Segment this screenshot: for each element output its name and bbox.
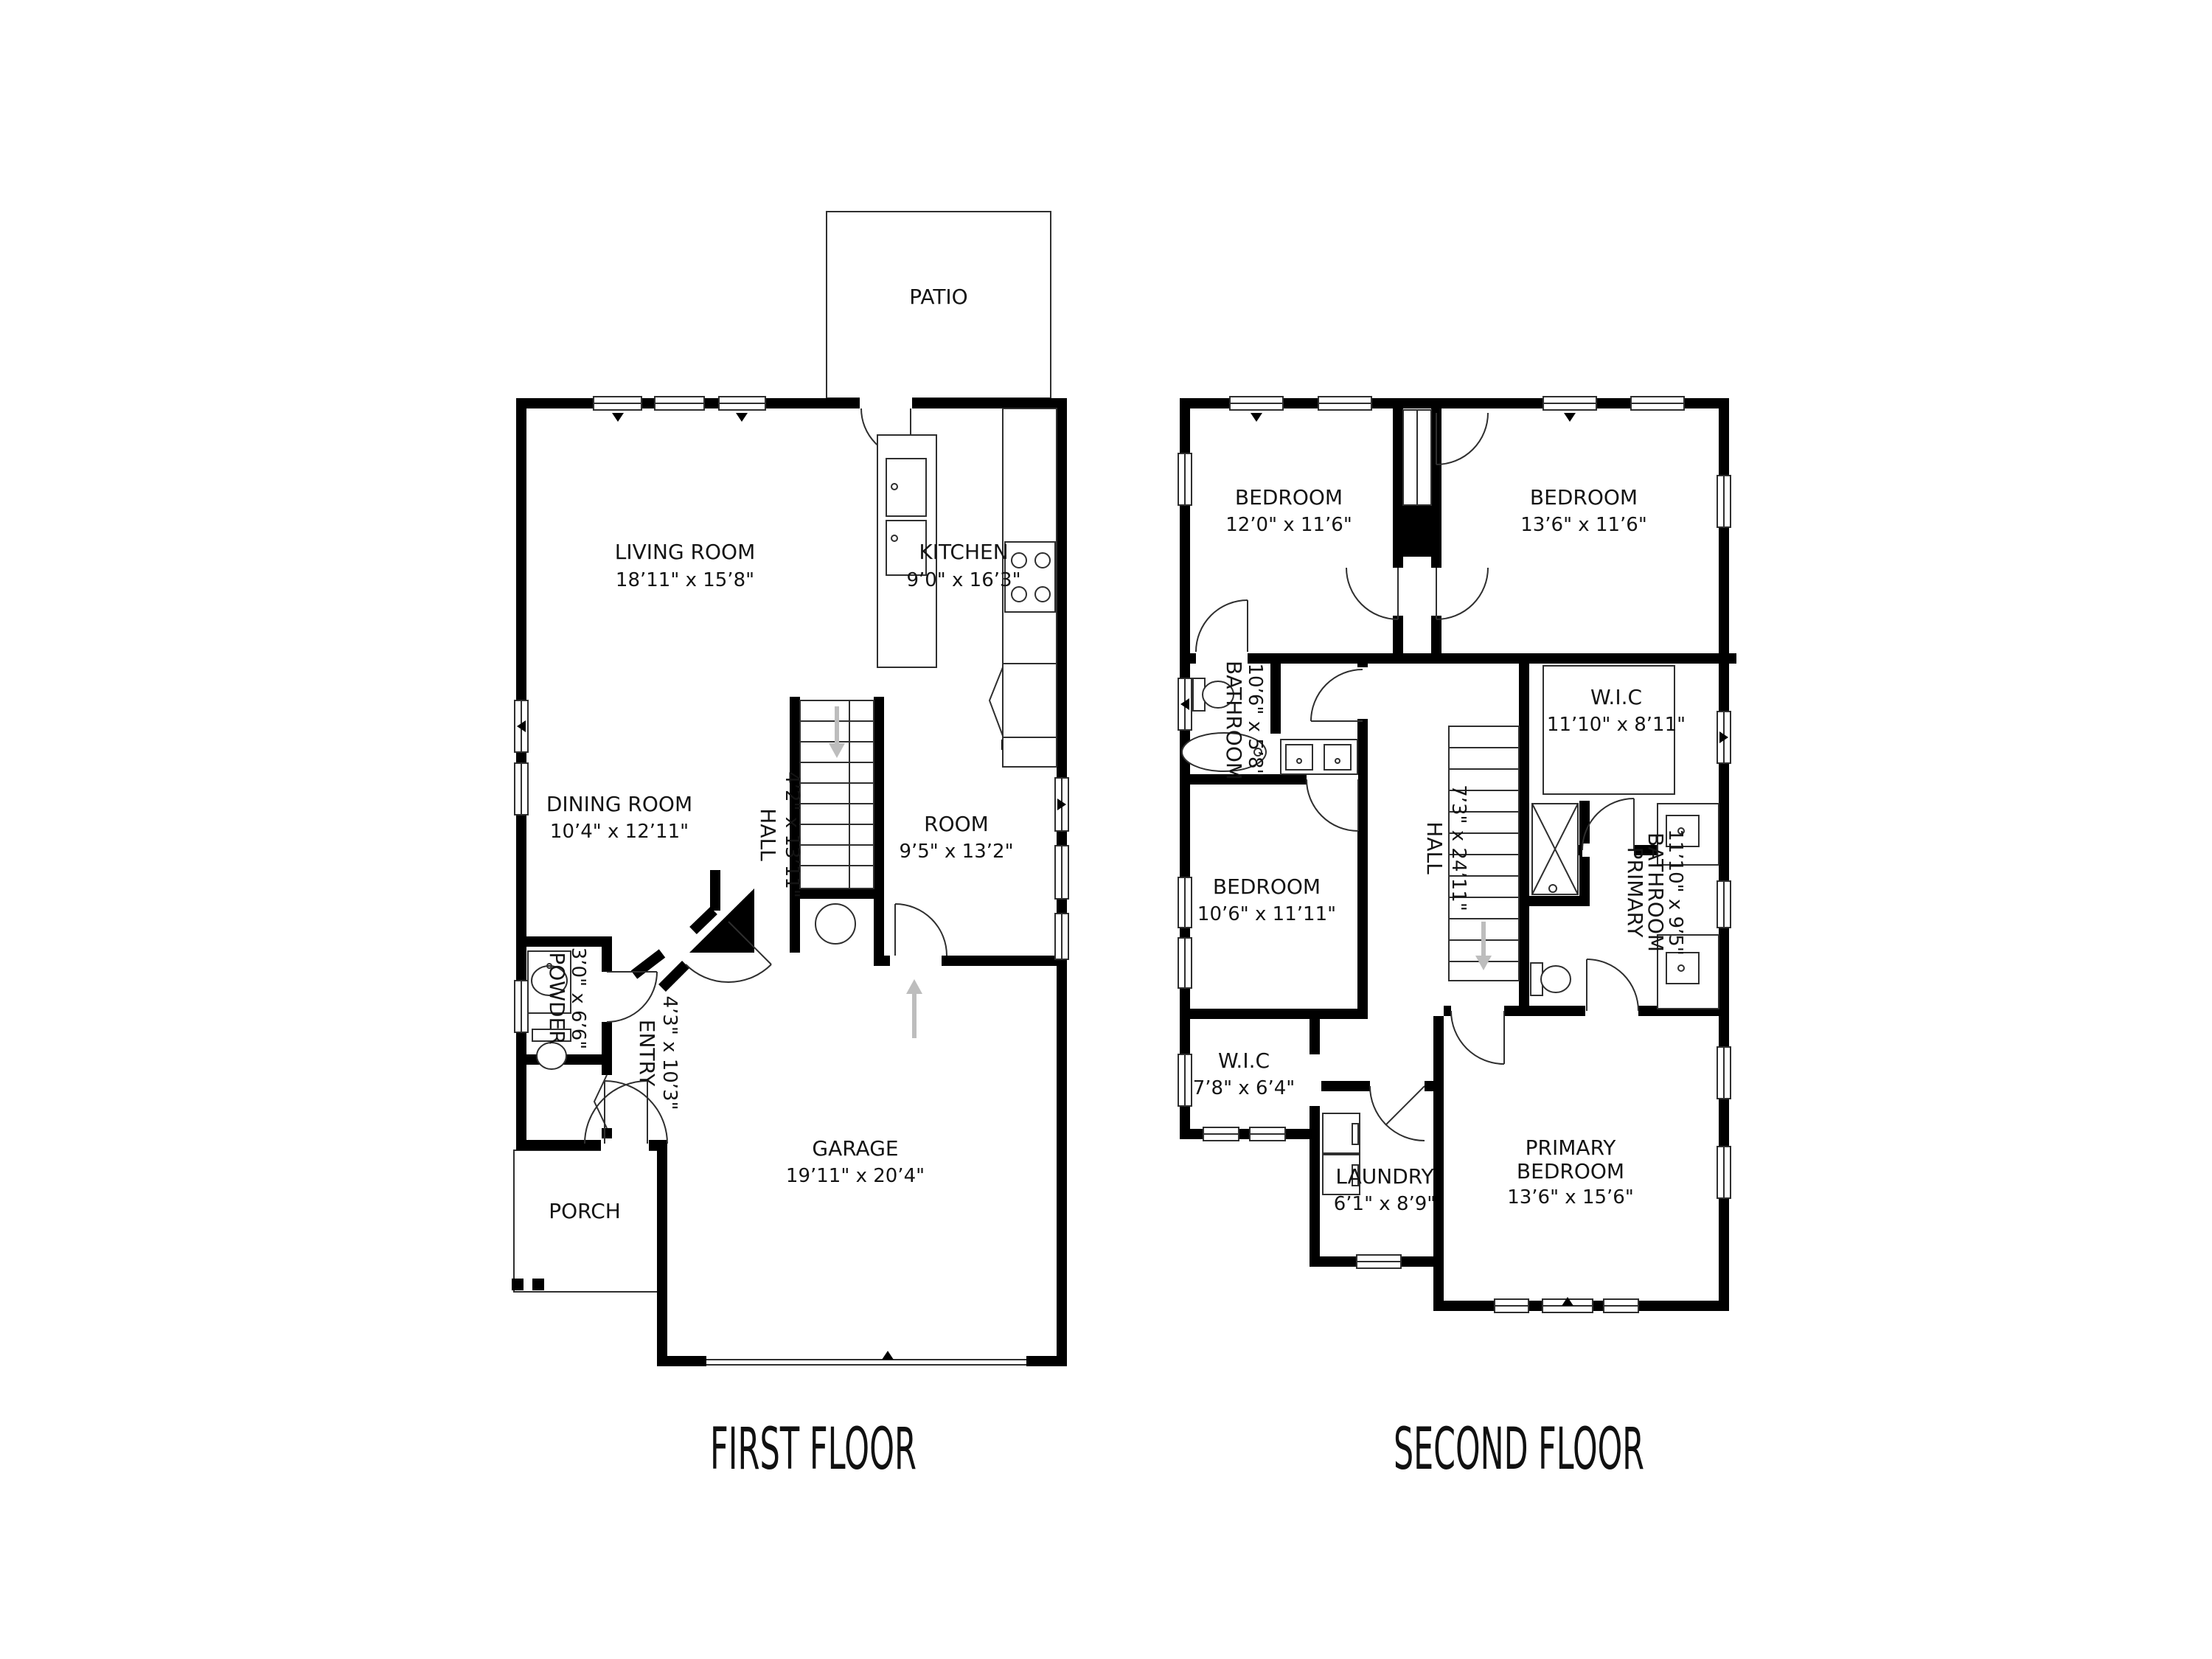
window [1631,397,1684,410]
svg-text:LIVING ROOM: LIVING ROOM [615,540,756,564]
bathroom-label: BATHROOM 10’6" x 5’8" [1222,661,1266,780]
svg-text:HALL: HALL [1422,821,1447,874]
svg-text:BEDROOM: BEDROOM [1530,485,1638,509]
primary-bedroom-door [1451,1004,1504,1064]
svg-text:6’1" x 8’9": 6’1" x 8’9" [1334,1193,1436,1215]
svg-text:19’11" x 20’4": 19’11" x 20’4" [786,1165,925,1187]
room-door [890,904,947,967]
bathroom-door [1311,667,1369,721]
pantry [990,664,1057,737]
second-floor-plan: BEDROOM 12’0" x 11’6" BEDROOM 13’6" x 11… [1178,397,1736,1483]
svg-text:4’2" x 13’11": 4’2" x 13’11" [781,771,803,898]
linen-closet [1403,410,1431,505]
hall-label: HALL 7’3" x 24’11" [1422,785,1470,911]
bedroom-door [1307,773,1358,831]
window [1178,1054,1192,1106]
window [1250,1127,1285,1141]
svg-text:10’6" x 5’8": 10’6" x 5’8" [1244,663,1266,777]
first-floor-labels: PATIO LIVING ROOM 18’11" x 15’8" KITCHEN… [545,285,1021,1483]
window [1178,877,1192,928]
window [1055,846,1068,899]
bedroom-door [1346,568,1398,619]
window [1604,1299,1638,1312]
living-room-label: LIVING ROOM 18’11" x 15’8" [615,540,756,591]
window [1055,914,1068,959]
svg-text:GARAGE: GARAGE [812,1136,898,1161]
svg-text:11’10" x 8’11": 11’10" x 8’11" [1547,714,1686,736]
window [1357,1255,1401,1268]
svg-text:PRIMARY: PRIMARY [1526,1135,1617,1160]
svg-text:10’6" x 11’11": 10’6" x 11’11" [1197,903,1336,925]
window [1203,1127,1239,1141]
flex-room-label: ROOM 9’5" x 13’2" [899,812,1013,863]
porch-pillar [512,1279,524,1290]
window [1543,397,1596,410]
svg-text:BEDROOM: BEDROOM [1235,485,1343,509]
svg-text:BEDROOM: BEDROOM [1213,874,1321,899]
wic-label: W.I.C 11’10" x 8’11" [1547,685,1686,736]
window [655,397,704,410]
first-floor-plan: PATIO LIVING ROOM 18’11" x 15’8" KITCHEN… [512,212,1068,1483]
window [1318,397,1371,410]
window [1495,1299,1528,1312]
primary-bedroom-label: PRIMARY BEDROOM 13’6" x 15’6" [1507,1135,1634,1208]
double-vanity [1281,740,1357,774]
water-heater-icon [815,904,855,944]
svg-text:W.I.C: W.I.C [1590,685,1642,709]
svg-text:9’5" x 13’2": 9’5" x 13’2" [899,841,1013,863]
window [1717,881,1731,928]
svg-text:10’4" x 12’11": 10’4" x 12’11" [550,821,689,843]
bathroom-tub-door [1196,600,1248,665]
garage-label: GARAGE 19’11" x 20’4" [786,1136,925,1187]
svg-text:DINING ROOM: DINING ROOM [546,792,692,816]
svg-text:BEDROOM: BEDROOM [1517,1159,1624,1183]
svg-text:ROOM: ROOM [924,812,989,836]
svg-text:ENTRY: ENTRY [635,1020,659,1087]
powder-door [600,972,657,1022]
garage-door [706,1354,1026,1368]
svg-text:7’8" x 6’4": 7’8" x 6’4" [1193,1077,1295,1099]
window [515,763,528,815]
svg-text:POWDER: POWDER [545,952,569,1044]
patio-label: PATIO [909,285,967,309]
toilet-icon [1531,963,1571,995]
svg-text:18’11" x 15’8": 18’11" x 15’8" [616,569,754,591]
bedroom-label: BEDROOM 13’6" x 11’6" [1520,485,1647,536]
svg-text:3’0" x 6’6": 3’0" x 6’6" [567,947,589,1050]
window [594,397,641,410]
svg-text:13’6" x 11’6": 13’6" x 11’6" [1520,514,1647,536]
porch-label: PORCH [549,1199,621,1223]
second-floor-title: SECOND FLOOR [1394,1416,1644,1483]
window [1717,1147,1731,1198]
primary-bathroom-label: PRIMARY BATHROOM 11’10" x 9’5" [1623,829,1686,956]
svg-text:12’0" x 11’6": 12’0" x 11’6" [1225,514,1352,536]
dining-room-label: DINING ROOM 10’4" x 12’11" [546,792,692,843]
wic-door-opening [1308,1054,1321,1106]
svg-text:BATHROOM: BATHROOM [1222,661,1246,780]
wic-label: W.I.C 7’8" x 6’4" [1193,1048,1295,1099]
svg-text:HALL: HALL [756,808,780,861]
window [719,397,765,410]
powder-label: POWDER 3’0" x 6’6" [545,947,589,1050]
bedroom-label: BEDROOM 10’6" x 11’11" [1197,874,1336,925]
svg-text:W.I.C: W.I.C [1218,1048,1270,1073]
bedroom-label: BEDROOM 12’0" x 11’6" [1225,485,1352,536]
svg-text:LAUNDRY: LAUNDRY [1335,1164,1434,1189]
floorplan-image: PATIO LIVING ROOM 18’11" x 15’8" KITCHEN… [0,0,2212,1659]
room-entry-arrow [906,979,922,1038]
laundry-door [1370,1079,1425,1141]
hall-label: HALL 4’2" x 13’11" [756,771,803,898]
window [1230,397,1283,410]
primary-bathroom-door [1585,959,1638,1018]
window [1717,476,1731,527]
svg-text:11’10" x 9’5": 11’10" x 9’5" [1664,829,1686,956]
window [515,981,528,1032]
svg-text:7’3" x 24’11": 7’3" x 24’11" [1447,785,1470,911]
window [1178,453,1192,505]
bedroom-door [1436,568,1488,619]
first-floor-title: FIRST FLOOR [710,1416,917,1483]
porch-pillar [532,1279,544,1290]
svg-text:13’6" x 15’6": 13’6" x 15’6" [1507,1186,1634,1208]
window [1178,938,1192,988]
staircase [800,700,874,944]
shower-icon [1532,804,1578,894]
svg-text:KITCHEN: KITCHEN [919,540,1008,564]
window [1717,1047,1731,1099]
svg-text:9’0" x 16’3": 9’0" x 16’3" [906,569,1020,591]
svg-text:4’3" x 10’3": 4’3" x 10’3" [658,995,681,1110]
linen-closet-door [1436,413,1488,465]
floorplan-page: PATIO LIVING ROOM 18’11" x 15’8" KITCHEN… [0,0,2212,1659]
